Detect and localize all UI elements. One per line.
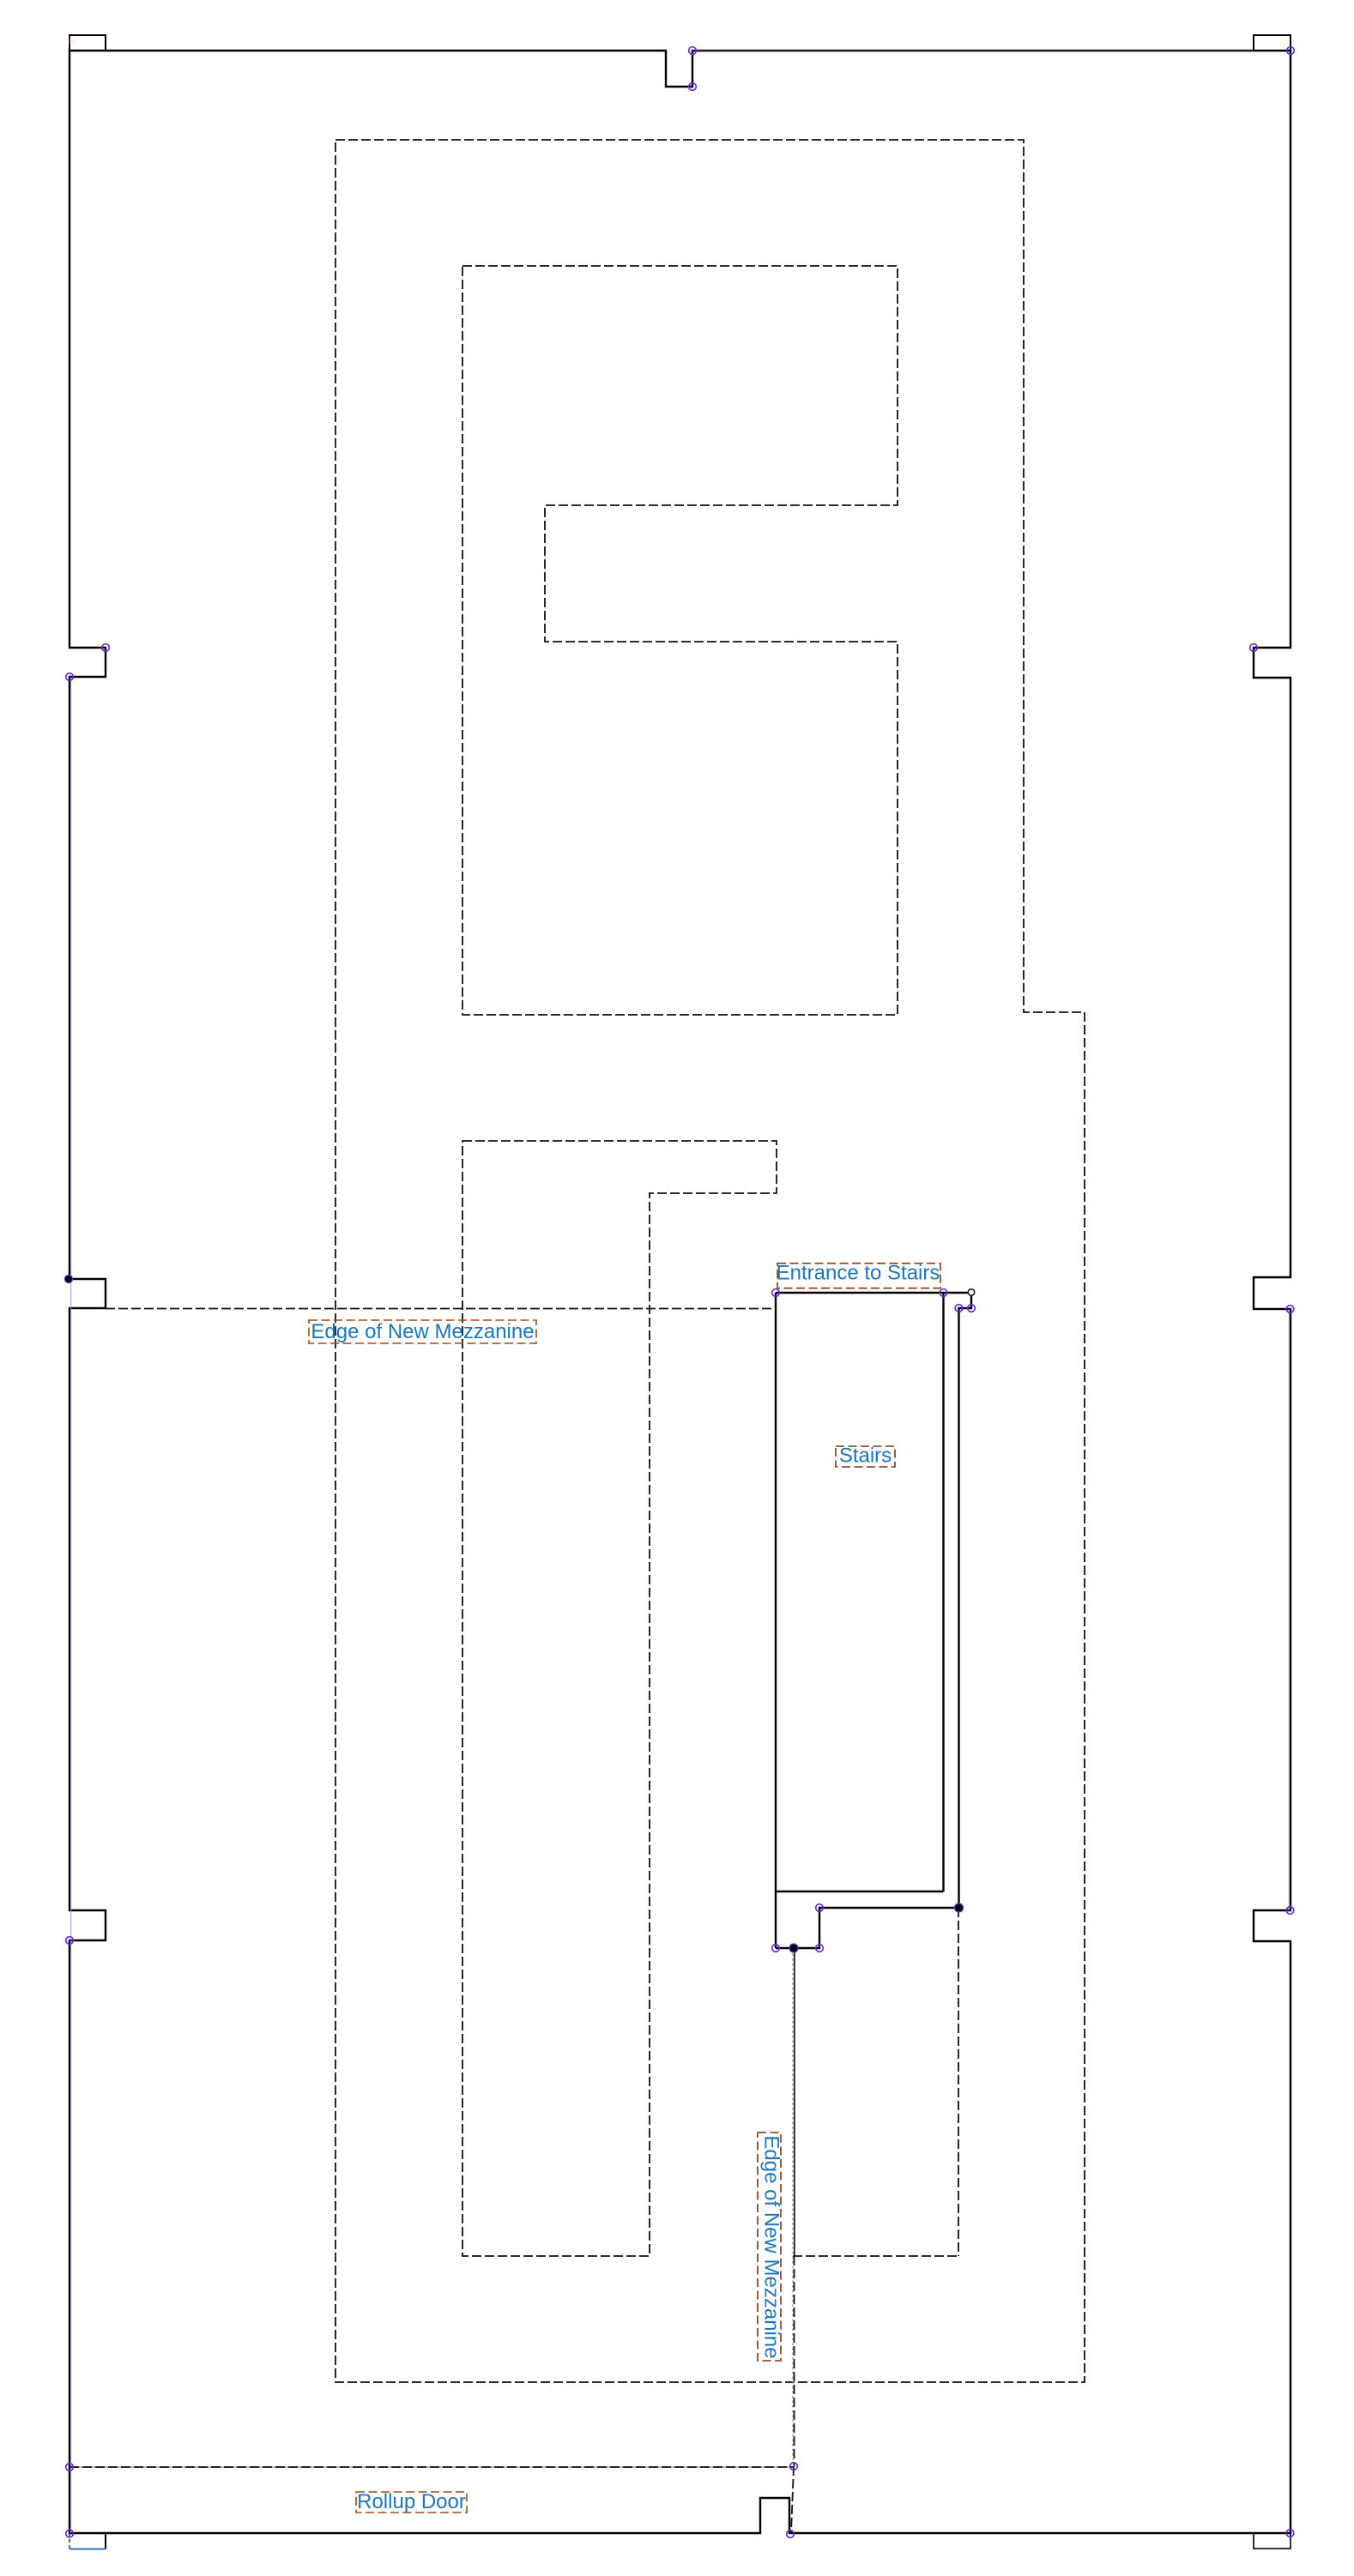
svg-text:Stairs: Stairs	[839, 1445, 892, 1468]
svg-text:Edge of New Mezzanine: Edge of New Mezzanine	[760, 2135, 783, 2358]
svg-text:Rollup Door: Rollup Door	[357, 2490, 466, 2513]
svg-text:Edge of New Mezzanine: Edge of New Mezzanine	[311, 1320, 534, 1343]
svg-text:Entrance to Stairs: Entrance to Stairs	[777, 1262, 940, 1285]
